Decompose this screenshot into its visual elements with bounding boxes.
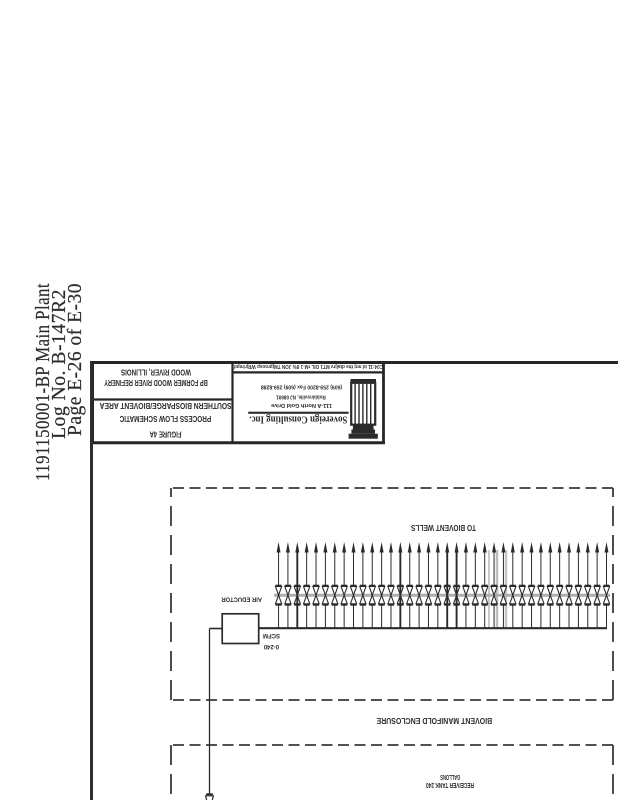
svg-text:FIGURE 4A: FIGURE 4A	[149, 430, 181, 439]
svg-text:C04:11 id mrj the dtaljrv MT: C04:11 id mrj the dtaljrv MT1 OIL rM-1 8…	[234, 363, 383, 369]
svg-text:GALLONS: GALLONS	[440, 773, 460, 782]
svg-text:AIR EDUCTOR: AIR EDUCTOR	[221, 596, 262, 603]
svg-text:SCFM: SCFM	[263, 632, 280, 639]
svg-text:Sovereign Consulting Inc.: Sovereign Consulting Inc.	[249, 414, 347, 425]
svg-text:BP FORMER WOOD RIVER REFINERY: BP FORMER WOOD RIVER REFINERY	[104, 378, 208, 387]
svg-text:(609) 259-8200 Fax (609) 259-8: (609) 259-8200 Fax (609) 259-8288	[260, 384, 342, 390]
svg-text:TO BIOVENT WELLS: TO BIOVENT WELLS	[410, 523, 476, 532]
svg-text:BIOVENT MANIFOLD ENCLOSURE: BIOVENT MANIFOLD ENCLOSURE	[376, 716, 492, 725]
svg-text:111-A North Gold Drive: 111-A North Gold Drive	[270, 402, 332, 408]
svg-text:RECEIVER TANK 240: RECEIVER TANK 240	[426, 781, 474, 790]
svg-text:Robbinsville, NJ 08691: Robbinsville, NJ 08691	[276, 393, 326, 399]
svg-text:WOOD RIVER, ILLINOIS: WOOD RIVER, ILLINOIS	[120, 367, 191, 376]
svg-text:0-240: 0-240	[264, 643, 279, 650]
svg-text:PROCESS FLOW SCHEMATIC: PROCESS FLOW SCHEMATIC	[119, 414, 211, 423]
svg-text:SOUTHERN BIOSPARGE/BIOVENT ARE: SOUTHERN BIOSPARGE/BIOVENT AREA	[99, 401, 231, 410]
